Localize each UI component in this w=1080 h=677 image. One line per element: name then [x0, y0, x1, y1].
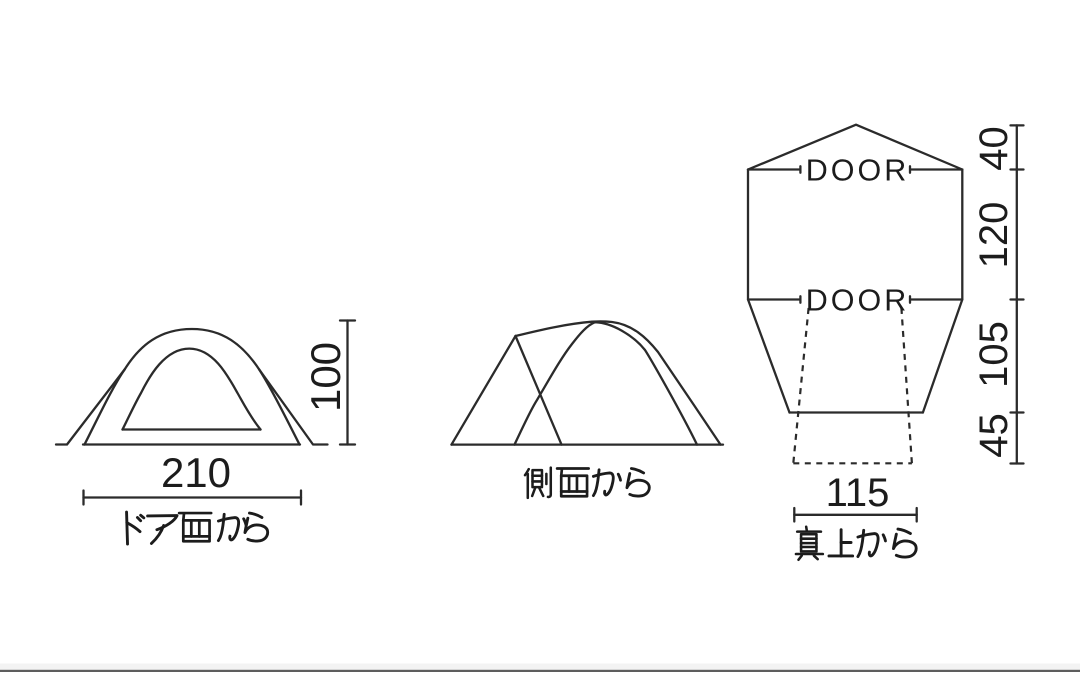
- svg-text:115: 115: [826, 471, 890, 515]
- svg-text:40: 40: [972, 126, 1016, 171]
- svg-text:DOOR: DOOR: [806, 284, 910, 318]
- svg-text:DOOR: DOOR: [806, 154, 910, 188]
- svg-text:120: 120: [972, 202, 1016, 269]
- svg-text:45: 45: [972, 413, 1016, 458]
- svg-text:100: 100: [302, 342, 349, 412]
- svg-text:105: 105: [972, 321, 1016, 388]
- svg-text:210: 210: [161, 449, 231, 496]
